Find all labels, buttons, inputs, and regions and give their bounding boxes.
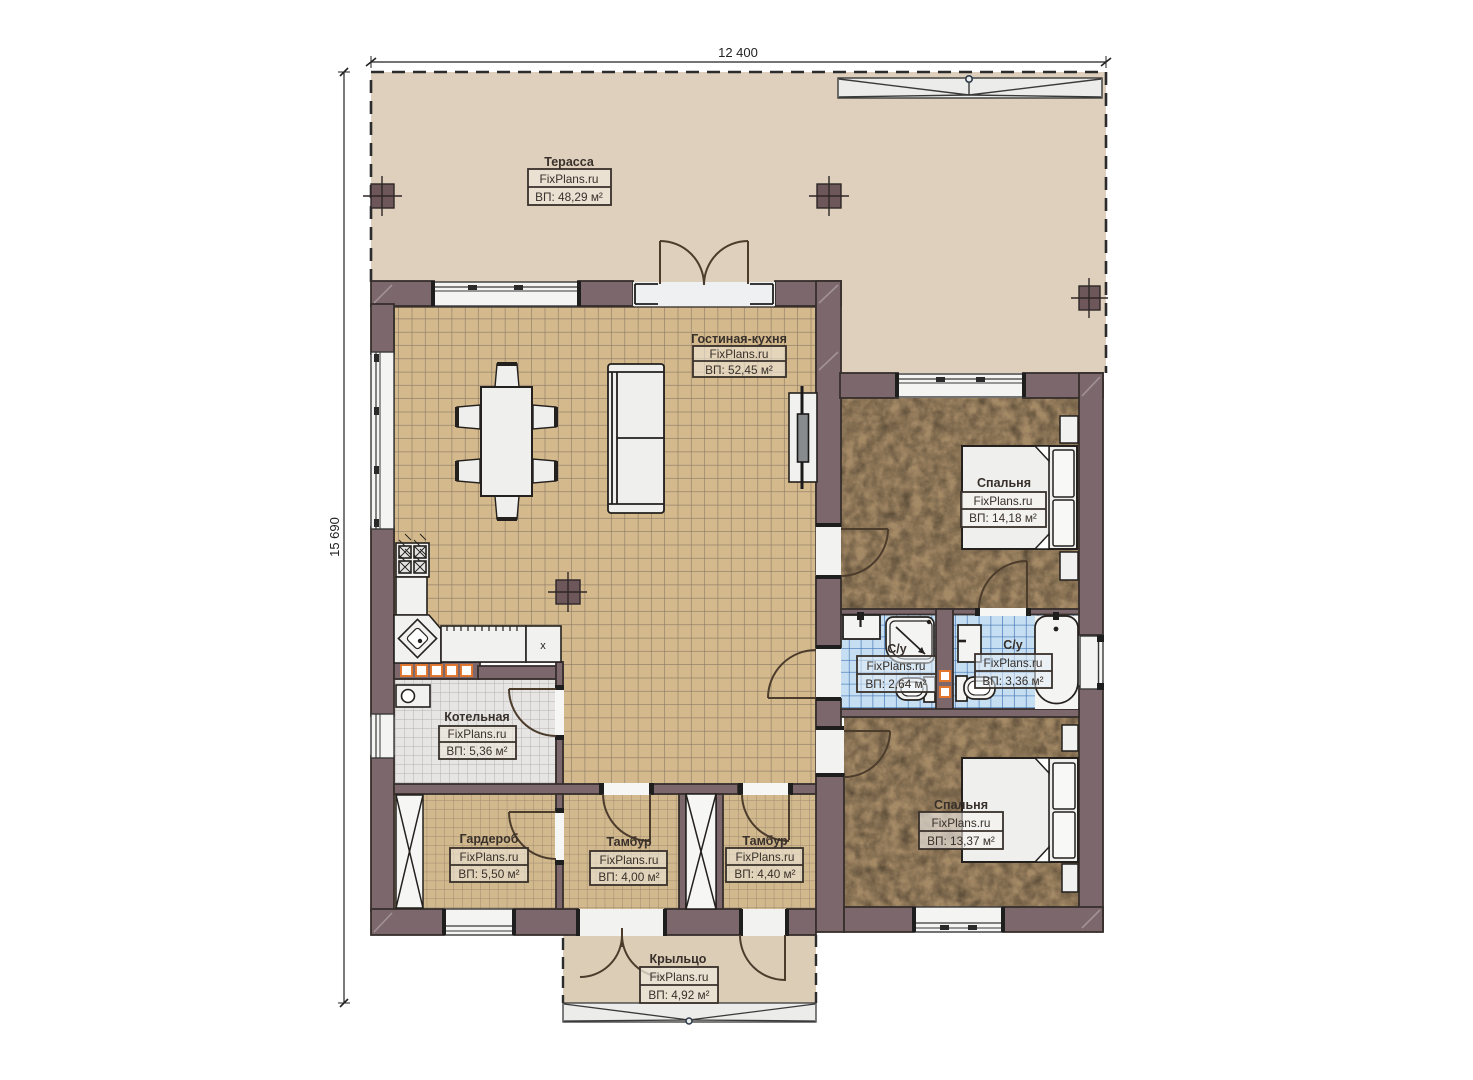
svg-text:15 690: 15 690: [327, 517, 342, 557]
svg-text:ВП: 52,45 м²: ВП: 52,45 м²: [705, 363, 773, 377]
svg-text:ВП: 13,37 м²: ВП: 13,37 м²: [927, 834, 995, 848]
svg-text:Спальня: Спальня: [977, 476, 1031, 490]
svg-text:ВП: 4,92 м²: ВП: 4,92 м²: [648, 988, 709, 1002]
svg-text:Гостиная-кухня: Гостиная-кухня: [691, 332, 787, 346]
svg-text:ВП: 4,00 м²: ВП: 4,00 м²: [598, 870, 659, 884]
svg-text:Гардероб: Гардероб: [459, 832, 518, 846]
svg-text:Тамбур: Тамбур: [606, 835, 652, 849]
svg-text:FixPlans.ru: FixPlans.ru: [539, 172, 598, 186]
svg-text:FixPlans.ru: FixPlans.ru: [973, 494, 1032, 508]
svg-text:ВП: 14,18 м²: ВП: 14,18 м²: [969, 511, 1037, 525]
svg-text:С/у: С/у: [1003, 638, 1023, 652]
svg-text:FixPlans.ru: FixPlans.ru: [599, 853, 658, 867]
svg-text:ВП: 5,36 м²: ВП: 5,36 м²: [446, 744, 507, 758]
svg-text:Крыльцо: Крыльцо: [650, 952, 707, 966]
svg-text:Котельная: Котельная: [444, 710, 509, 724]
svg-text:Тамбур: Тамбур: [742, 834, 788, 848]
svg-text:FixPlans.ru: FixPlans.ru: [447, 727, 506, 741]
svg-text:FixPlans.ru: FixPlans.ru: [866, 659, 925, 673]
svg-text:Спальня: Спальня: [934, 798, 988, 812]
svg-text:С/у: С/у: [887, 642, 907, 656]
svg-text:FixPlans.ru: FixPlans.ru: [983, 656, 1042, 670]
svg-text:FixPlans.ru: FixPlans.ru: [709, 347, 768, 361]
svg-text:ВП: 48,29 м²: ВП: 48,29 м²: [535, 190, 603, 204]
svg-text:FixPlans.ru: FixPlans.ru: [735, 850, 794, 864]
svg-text:FixPlans.ru: FixPlans.ru: [649, 970, 708, 984]
svg-text:FixPlans.ru: FixPlans.ru: [459, 850, 518, 864]
svg-text:ВП: 5,50 м²: ВП: 5,50 м²: [458, 867, 519, 881]
svg-text:Терасса: Терасса: [544, 155, 595, 169]
svg-text:FixPlans.ru: FixPlans.ru: [931, 816, 990, 830]
svg-text:ВП: 4,40 м²: ВП: 4,40 м²: [734, 867, 795, 881]
svg-text:12 400: 12 400: [718, 45, 758, 60]
svg-text:ВП: 3,36 м²: ВП: 3,36 м²: [982, 674, 1043, 688]
svg-text:x: x: [540, 640, 546, 652]
svg-text:ВП: 2,64 м²: ВП: 2,64 м²: [865, 677, 926, 691]
